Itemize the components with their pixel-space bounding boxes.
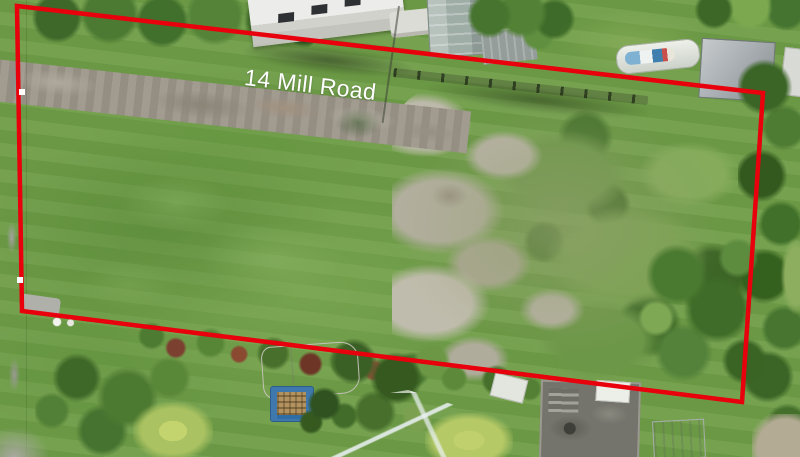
boat-cockpit bbox=[624, 47, 675, 65]
tree-corner-top-right bbox=[690, 0, 800, 34]
tree-cluster-right-inside bbox=[636, 232, 772, 404]
yellow-bush-left bbox=[133, 402, 213, 457]
skylight-panel bbox=[345, 0, 361, 7]
steps bbox=[548, 388, 579, 413]
shed-bottom-white bbox=[652, 419, 706, 457]
aerial-photo: 14 Mill Road bbox=[0, 0, 800, 457]
skylight-panel bbox=[278, 12, 294, 23]
lawn-dark-spot bbox=[336, 108, 380, 138]
skylight-panel bbox=[311, 4, 327, 15]
road-left bbox=[0, 0, 27, 457]
manhole bbox=[564, 422, 576, 434]
lawn-light-patches bbox=[80, 150, 400, 330]
white-flowers bbox=[48, 314, 78, 330]
corner-path-bottom-right bbox=[752, 414, 800, 457]
white-panel-paved bbox=[595, 380, 630, 403]
